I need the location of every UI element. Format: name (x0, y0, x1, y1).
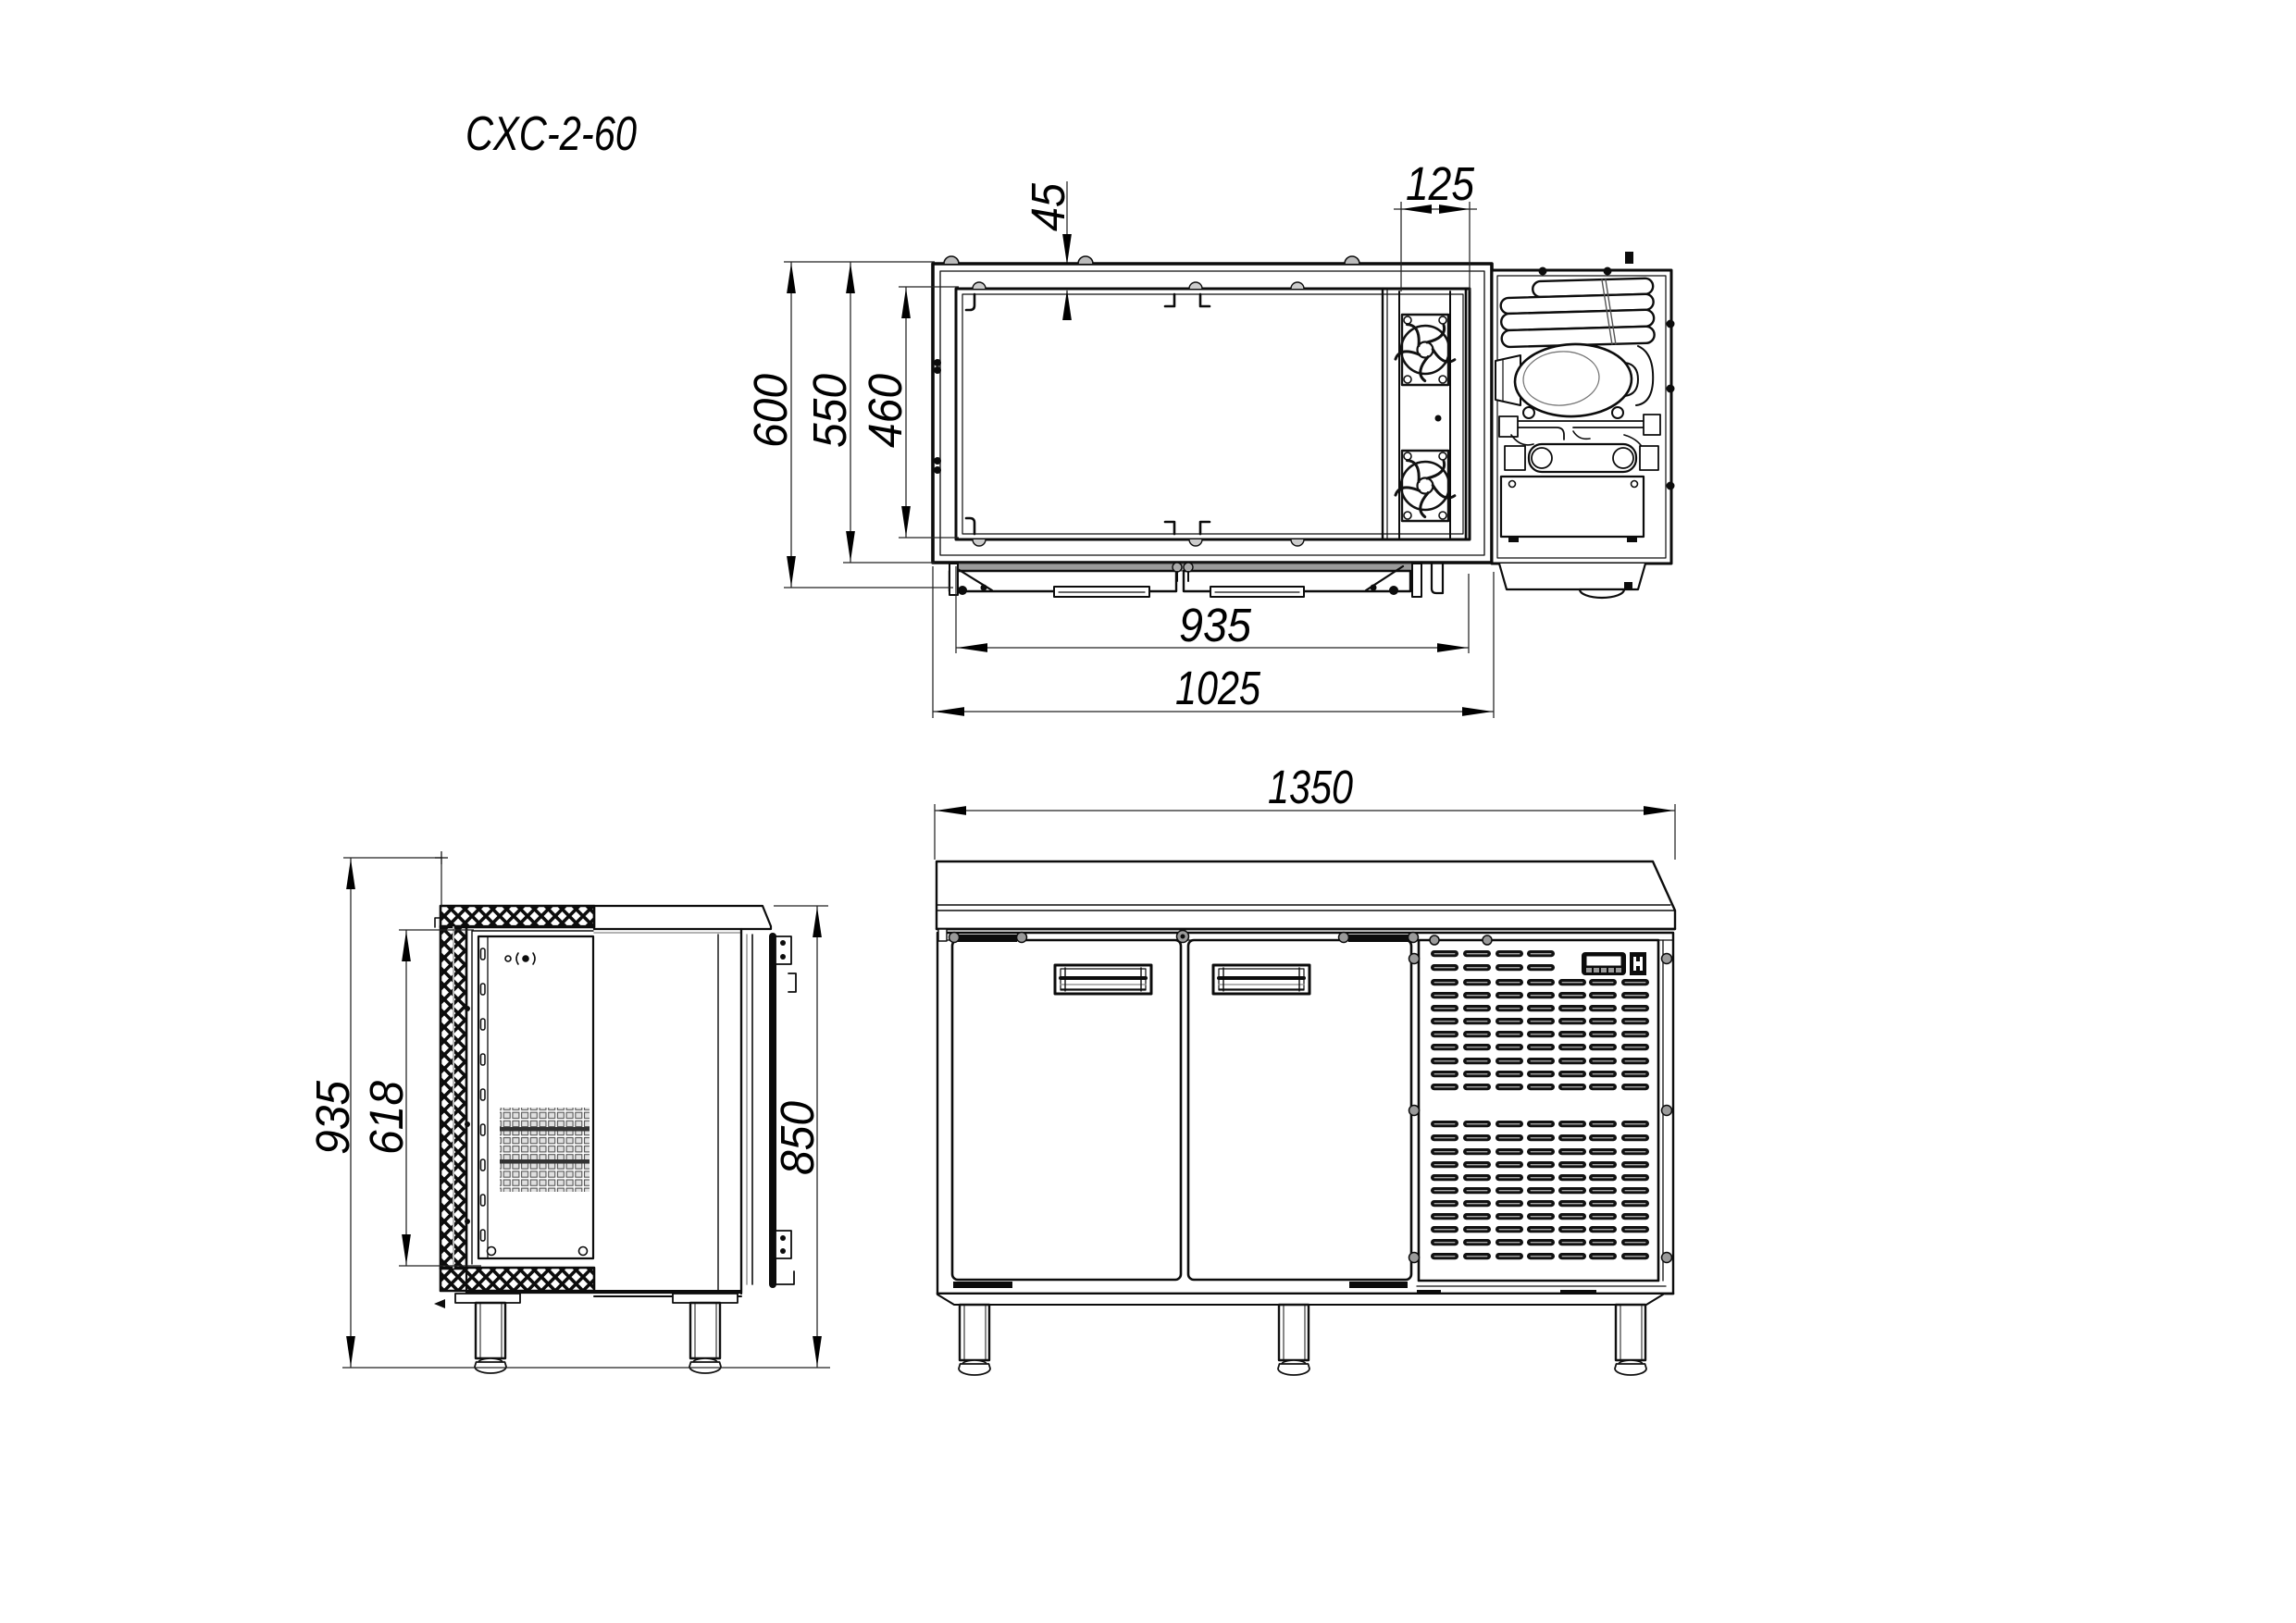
svg-text:935: 935 (1179, 599, 1252, 651)
svg-text:550: 550 (803, 374, 856, 448)
svg-text:618: 618 (360, 1080, 413, 1155)
svg-text:850: 850 (771, 1101, 824, 1175)
svg-text:1025: 1025 (1175, 662, 1261, 714)
svg-text:600: 600 (744, 374, 797, 448)
svg-text:CXC-2-60: CXC-2-60 (465, 107, 637, 161)
svg-text:125: 125 (1406, 157, 1475, 210)
svg-text:935: 935 (306, 1080, 359, 1155)
svg-text:45: 45 (1022, 182, 1074, 231)
svg-text:1350: 1350 (1268, 761, 1353, 813)
svg-text:460: 460 (859, 374, 912, 448)
